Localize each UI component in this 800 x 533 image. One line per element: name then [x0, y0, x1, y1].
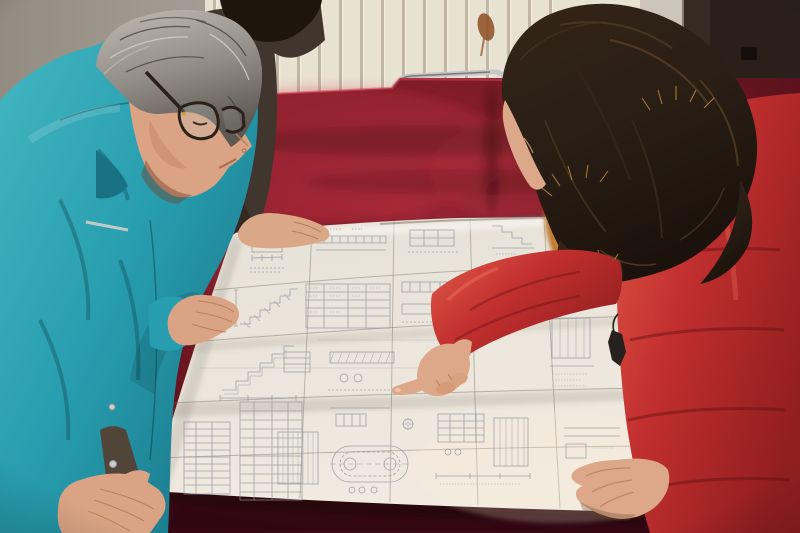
photo-scene: Photograph: two workers reviewing a larg… [0, 0, 800, 533]
vignette [0, 0, 800, 533]
